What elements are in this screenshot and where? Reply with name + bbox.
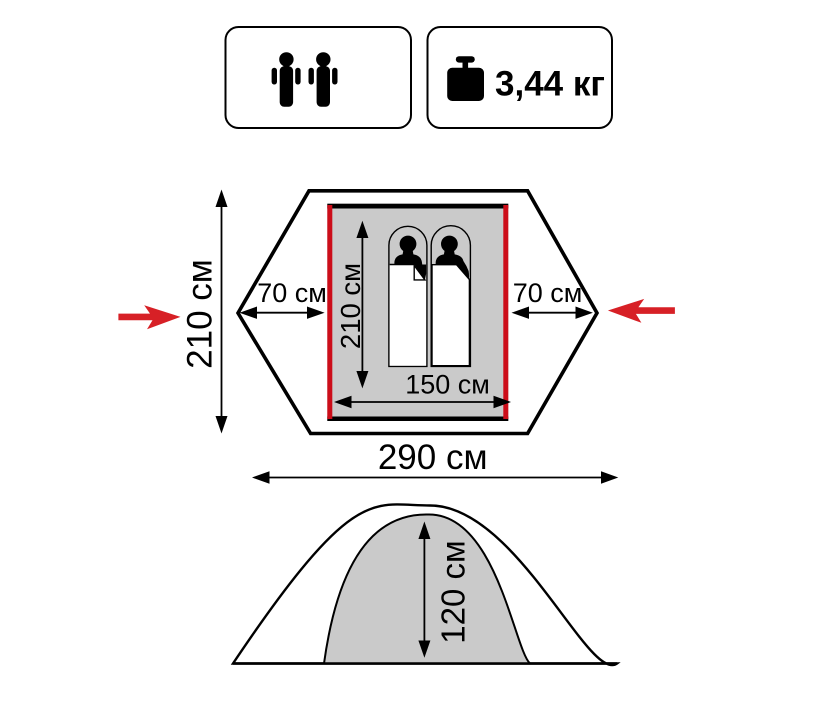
svg-text:70 см: 70 см [257,278,327,308]
svg-text:70 см: 70 см [513,278,583,308]
svg-text:210 см: 210 см [335,263,366,349]
svg-text:210 см: 210 см [180,259,219,369]
svg-text:150 см: 150 см [405,370,490,400]
svg-text:3,44 кг: 3,44 кг [495,65,605,104]
svg-text:290 см: 290 см [378,438,488,477]
svg-text:120 см: 120 см [435,540,472,643]
